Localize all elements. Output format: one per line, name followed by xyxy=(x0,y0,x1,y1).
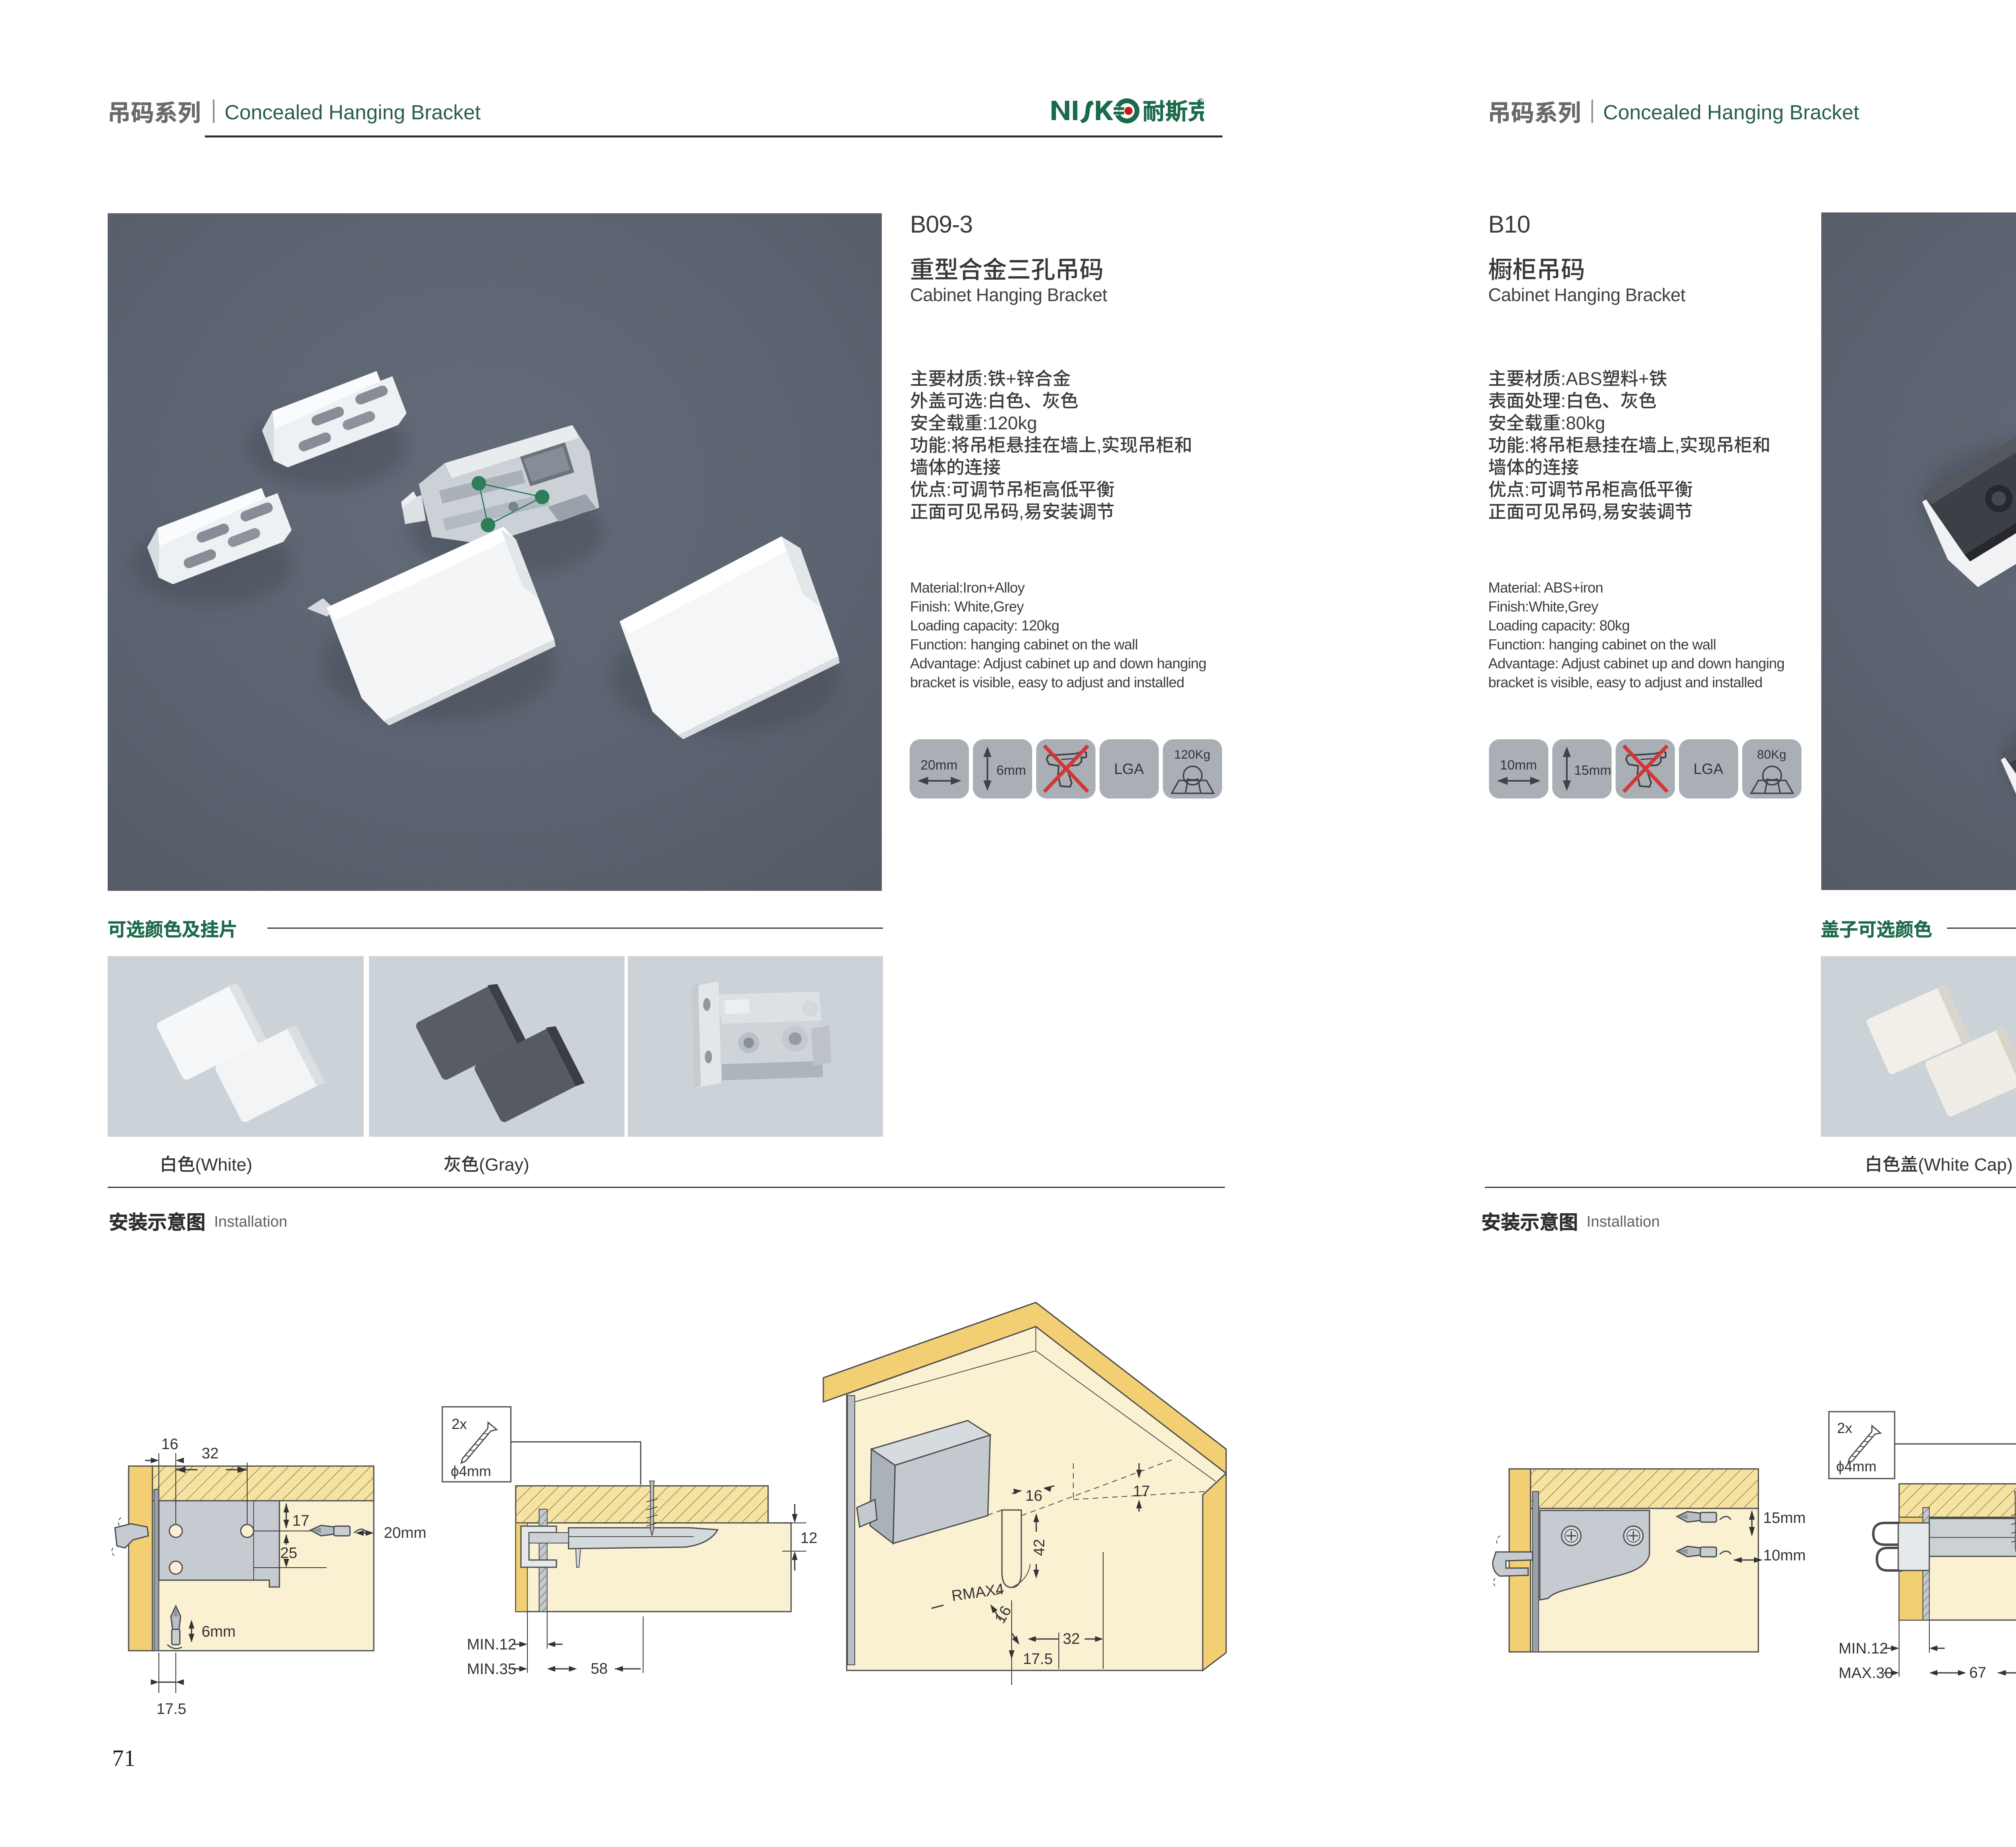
svg-text:LGA: LGA xyxy=(1693,761,1723,777)
svg-text:67: 67 xyxy=(1969,1664,1986,1681)
svg-text:42: 42 xyxy=(1031,1539,1048,1556)
svg-text:MIN.12: MIN.12 xyxy=(467,1636,516,1653)
svg-text:17: 17 xyxy=(1133,1483,1150,1500)
svg-text:2x: 2x xyxy=(452,1416,467,1432)
svg-text:10mm: 10mm xyxy=(1500,757,1537,772)
svg-text:17.5: 17.5 xyxy=(156,1701,186,1718)
svg-text:32: 32 xyxy=(202,1445,219,1462)
svg-text:ϕ4mm: ϕ4mm xyxy=(451,1463,491,1479)
svg-text:58: 58 xyxy=(591,1660,608,1677)
svg-text:®: ® xyxy=(1198,97,1204,106)
svg-text:LGA: LGA xyxy=(1114,761,1144,777)
svg-text:20mm: 20mm xyxy=(384,1525,427,1541)
svg-text:6mm: 6mm xyxy=(202,1623,235,1640)
svg-text:20mm: 20mm xyxy=(921,757,958,772)
svg-text:15mm: 15mm xyxy=(1574,763,1611,778)
svg-text:2x: 2x xyxy=(1837,1420,1852,1436)
svg-text:16: 16 xyxy=(1025,1487,1042,1504)
svg-text:MIN.35: MIN.35 xyxy=(467,1661,516,1678)
svg-text:MIN.12: MIN.12 xyxy=(1839,1640,1888,1657)
svg-text:80Kg: 80Kg xyxy=(1757,747,1786,761)
svg-text:耐斯克: 耐斯克 xyxy=(1143,95,1204,126)
svg-text:6mm: 6mm xyxy=(996,763,1026,778)
svg-text:ϕ4mm: ϕ4mm xyxy=(1836,1458,1876,1475)
svg-text:120Kg: 120Kg xyxy=(1174,747,1210,761)
svg-text:32: 32 xyxy=(1063,1631,1080,1647)
svg-text:17.5: 17.5 xyxy=(1023,1651,1053,1668)
svg-text:16: 16 xyxy=(161,1436,178,1453)
svg-text:17: 17 xyxy=(292,1512,309,1529)
